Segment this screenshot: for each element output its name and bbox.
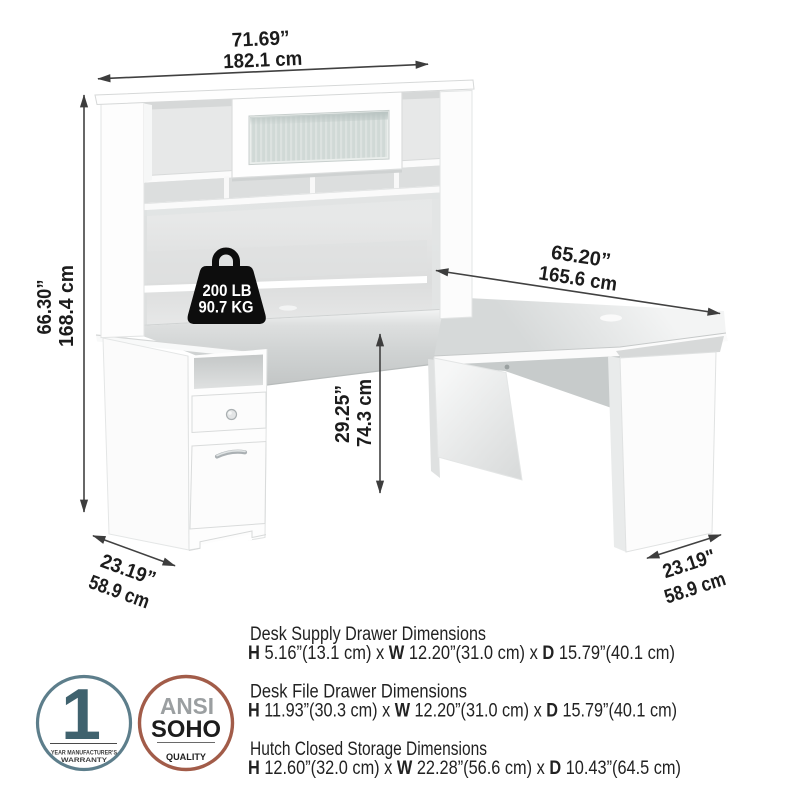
svg-text:SOHO: SOHO (151, 716, 221, 743)
svg-text:66.30”: 66.30” (34, 280, 56, 335)
svg-text:QUALITY: QUALITY (166, 752, 207, 763)
svg-text:182.1 cm: 182.1 cm (223, 48, 303, 73)
svg-text:200 LB: 200 LB (203, 282, 252, 300)
svg-text:Desk File Drawer Dimensions: Desk File Drawer Dimensions (250, 682, 467, 703)
svg-text:29.25”: 29.25” (332, 385, 354, 443)
svg-text:74.3 cm: 74.3 cm (354, 379, 376, 447)
svg-text:H 5.16”(13.1 cm) x W 12.20”(3: H 5.16”(13.1 cm) x W 12.20”(31.0 cm) x D… (248, 643, 675, 664)
svg-text:H 12.60”(32.0 cm) x W 22.28”(5: H 12.60”(32.0 cm) x W 22.28”(56.6 cm) x … (248, 758, 681, 779)
svg-text:Desk Supply Drawer Dimensions: Desk Supply Drawer Dimensions (250, 624, 486, 645)
svg-text:YEAR MANUFACTURER’S: YEAR MANUFACTURER’S (51, 750, 118, 757)
svg-text:Hutch Closed Storage Dimension: Hutch Closed Storage Dimensions (250, 739, 487, 760)
svg-text:90.7 KG: 90.7 KG (199, 299, 254, 317)
svg-text:H 11.93”(30.3 cm) x W 12.20”(: H 11.93”(30.3 cm) x W 12.20”(31.0 cm) x … (248, 701, 677, 722)
svg-text:168.4 cm: 168.4 cm (56, 265, 78, 347)
svg-text:WARRANTY: WARRANTY (61, 757, 108, 764)
